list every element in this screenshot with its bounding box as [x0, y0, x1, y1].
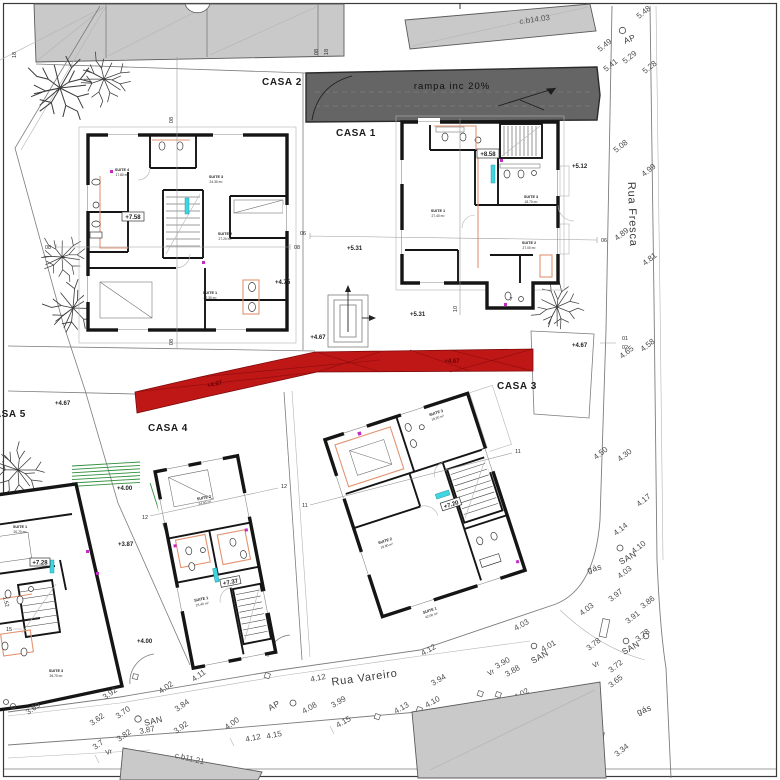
grid-11-right: 11 [515, 449, 521, 455]
level-512: +5.12 [572, 164, 588, 170]
spot-v9: 3.92 [172, 719, 190, 736]
spot-v18: 4.12 [420, 642, 438, 658]
spot-f11: 4.50 [592, 445, 610, 462]
grid-08-top: 08 [169, 117, 175, 123]
casa5-suite3-name: SUITE 3 [49, 669, 63, 673]
casa5-suite1-area: 20.70 m² [13, 530, 27, 534]
casa1-suite3-name: SUITE 3 [524, 195, 538, 199]
san-label-bl: SAN [143, 714, 164, 728]
spot-f18: 3.86 [639, 594, 657, 611]
casa2-label: CASA 2 [262, 77, 302, 88]
ap-circle-bottom [290, 700, 296, 706]
casa5-suite3-area: 26.70 m² [49, 674, 63, 678]
gas-label-1: gás [586, 561, 603, 575]
ap-label-bottom: AP [266, 698, 281, 713]
ramp: rampa inc 20% [306, 67, 600, 122]
spot-f2: 5.29 [621, 49, 639, 66]
spot-f24: 3.78 [585, 636, 603, 653]
street-rua-fresca: Rua Fresca [625, 182, 639, 247]
spot-v23: 4.03 [513, 617, 531, 633]
spot-f22: 3.65 [607, 673, 625, 690]
spot-f6: 4.99 [640, 162, 658, 179]
spot-v7: 4.02 [157, 679, 175, 696]
neighbor-buildings-bottom: c.b11.21 [120, 682, 606, 780]
level-475: +4.75 [275, 280, 291, 286]
casa2-suite1-area: 42.30 m² [203, 296, 217, 300]
grid-06-right: 06 [601, 238, 607, 244]
san-circle-r1 [617, 545, 623, 551]
casa2-suite1-name: SUITE 1 [203, 291, 217, 295]
grid-06-left: 06 [300, 231, 306, 237]
grid-01: 01 [622, 336, 628, 342]
ramp-label: rampa inc 20% [414, 81, 490, 92]
red-strip-level-b: +4.67 [444, 359, 460, 365]
grid-15: 15 [6, 627, 12, 633]
level-467-casa5: +4.67 [55, 401, 71, 407]
spot-v12: 4.12 [245, 732, 263, 744]
site-plan-sheet: c.b14.03 [0, 0, 780, 780]
neighbor-buildings-top: c.b14.03 [0, 4, 596, 62]
house-casa5: +7.28 SUITE 1 20.70 m² SUITE 3 26.70 m² … [0, 484, 122, 712]
casa2-suite2-area: 27.20 m² [218, 237, 232, 241]
spot-v20: 4.15 [335, 714, 353, 730]
spot-f20: 3.91 [624, 609, 642, 626]
casa2-suite4-name: SUITE 4 [115, 168, 130, 172]
casa1-suite1-area: 27.40 m² [431, 214, 445, 218]
spot-v17: 3.99 [330, 694, 348, 710]
casa1-suite2-name: SUITE 2 [522, 241, 536, 245]
level-400a: +4.00 [117, 486, 133, 492]
site-plan-drawing: c.b14.03 [0, 0, 780, 780]
spot-v15: 4.12 [310, 672, 328, 684]
grid-18-left-edge: 18 [12, 52, 18, 58]
spot-f25: 3.72 [607, 658, 625, 675]
casa1-suite2-area: 27.00 m² [522, 246, 536, 250]
grid-07: 7 [509, 297, 512, 303]
grid-08-ramp: 08 [314, 49, 320, 55]
grid-08-left: 08 [45, 245, 51, 251]
casa2-suite3-name: SUITE 3 [209, 175, 223, 179]
spot-f16: 4.03 [616, 564, 634, 581]
spot-f23: 3.34 [613, 742, 631, 759]
spot-f17: 3.97 [607, 587, 625, 604]
spot-v5: 3.82 [115, 727, 133, 744]
level-531b: +5.31 [410, 312, 426, 318]
casa2-floor-level: +7.58 [125, 215, 141, 221]
casa2-suite3-area: 24.30 m² [209, 180, 223, 184]
gas-label-2: gás [635, 702, 652, 716]
casa4-label: CASA 4 [148, 423, 188, 434]
level-387: +3.87 [118, 542, 134, 548]
spot-v3: 3.70 [114, 704, 132, 721]
level-467-stairs: +4.67 [310, 335, 326, 341]
casa3-label: CASA 3 [497, 381, 537, 392]
grid-11-left: 11 [302, 503, 308, 509]
level-400b: +4.00 [137, 639, 153, 645]
grid-10: 10 [453, 306, 459, 312]
casa2-suite2-name: SUITE 2 [218, 232, 232, 236]
vr-label-1: Vr [105, 748, 114, 757]
casa1-floor-level: +8.58 [480, 152, 496, 158]
casa5-label: CASA 5 [0, 409, 26, 420]
spot-f19: 4.03 [578, 601, 596, 618]
spot-v16: 4.08 [301, 700, 319, 716]
house-casa1: +8.58 SUITE 1 27.40 m² SUITE 2 27.00 m² … [396, 116, 574, 308]
red-strip: +4.67 +4.67 [135, 349, 533, 413]
vr-label-3: Vr [592, 660, 602, 670]
spot-v13: 4.15 [266, 729, 284, 741]
grid-12-right: 12 [281, 484, 287, 490]
house-casa3: +7.20 SUITE 3 18.20 m² SUITE 2 19.80 m² … [320, 382, 555, 634]
spot-f9: 4.65 [618, 344, 636, 361]
casa1-suite1-name: SUITE 1 [431, 209, 445, 213]
casa5-suite1-name: SUITE 1 [13, 525, 27, 529]
spot-v8: 3.84 [173, 697, 191, 714]
casa1-label: CASA 1 [336, 128, 376, 139]
spot-f13: 4.17 [635, 492, 653, 509]
casa5-floor-level: +7.28 [32, 561, 48, 567]
grid-12-left: 12 [142, 515, 148, 521]
spot-v1: 3.62 [88, 711, 106, 728]
ap-label-top: AP [622, 32, 637, 46]
san-circle-b [531, 643, 537, 649]
level-531a: +5.31 [347, 246, 363, 252]
spot-f14: 4.14 [612, 521, 630, 538]
garden-steps [72, 462, 140, 486]
house-casa2: +7.58 SUITE 4 17.80 m² SUITE 3 24.30 m² … [79, 127, 296, 343]
vr-label-2: Vr [487, 668, 497, 678]
level-467-right: +4.67 [572, 343, 588, 349]
spot-f12: 4.30 [616, 447, 634, 464]
grid-08-right: 08 [294, 245, 300, 251]
house-casa4: +7.37 SUITE 2 24.90 m² SUITE 1 23.40 m² [147, 451, 279, 672]
casa1-suite3-area: 18.70 m² [524, 200, 538, 204]
casa2-suite4-area: 17.80 m² [115, 173, 129, 177]
spot-f8: 4.81 [641, 251, 659, 268]
spot-v6: 3.7 [91, 738, 106, 752]
spot-f5: 5.08 [612, 138, 630, 155]
grid-08-bottom: 08 [169, 339, 175, 345]
spot-f4: 5.28 [641, 59, 659, 76]
san-circle-bl [135, 716, 141, 722]
exterior-stairs [328, 285, 376, 347]
spot-v19: 3.94 [430, 672, 448, 688]
street-rua-vareiro: Rua Vareiro [331, 667, 399, 688]
spot-v11: 4.00 [223, 715, 241, 732]
ap-circle-top [619, 27, 625, 33]
grid-18-ramp: 18 [324, 49, 330, 55]
